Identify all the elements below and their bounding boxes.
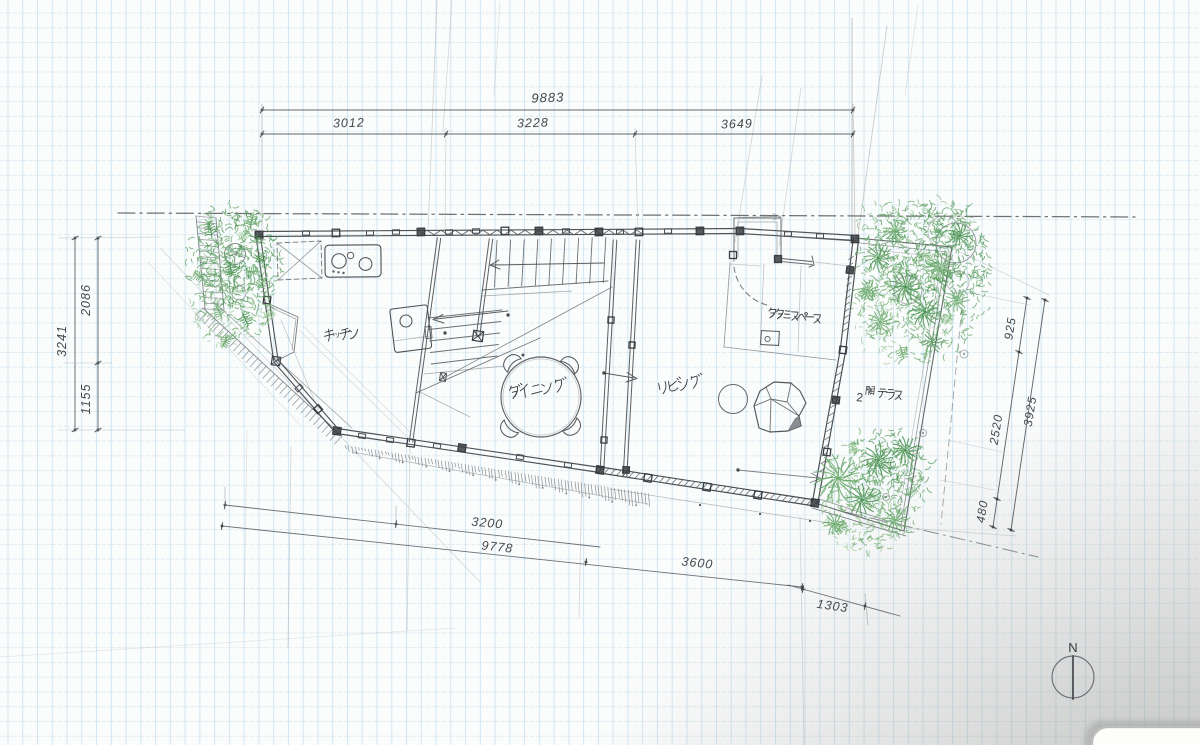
svg-text:3012: 3012	[333, 115, 365, 130]
svg-text:3200: 3200	[471, 515, 504, 532]
svg-text:3649: 3649	[721, 116, 753, 131]
svg-text:1155: 1155	[79, 384, 93, 415]
svg-text:3228: 3228	[517, 115, 549, 130]
svg-text:3241: 3241	[55, 325, 69, 357]
svg-text:2086: 2086	[79, 284, 93, 317]
svg-text:9883: 9883	[531, 89, 564, 105]
svg-text:N: N	[1068, 640, 1077, 655]
